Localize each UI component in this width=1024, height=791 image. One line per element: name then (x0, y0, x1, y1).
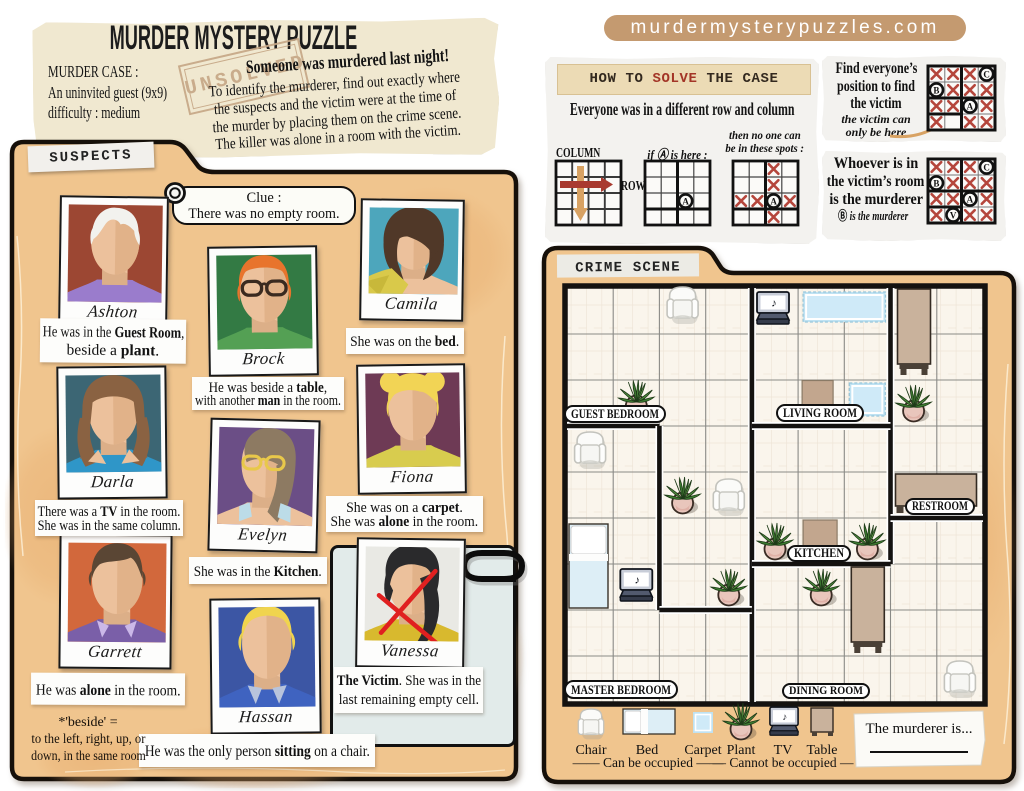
svg-text:GUEST BEDROOM: GUEST BEDROOM (571, 407, 659, 421)
svg-text:DINING ROOM: DINING ROOM (789, 683, 863, 697)
svg-text:CRIME SCENE: CRIME SCENE (575, 260, 681, 277)
svg-text:The murderer is...: The murderer is... (865, 721, 972, 737)
svg-text:C: C (983, 162, 990, 172)
svg-text:A: A (770, 196, 777, 206)
svg-text:B: B (933, 178, 939, 188)
svg-text:A: A (967, 194, 974, 204)
svg-text:KITCHEN: KITCHEN (794, 546, 844, 560)
svg-text:MASTER BEDROOM: MASTER BEDROOM (571, 682, 671, 697)
svg-text:A: A (967, 101, 974, 111)
svg-text:— Cannot be occupied —: — Cannot be occupied — (712, 755, 854, 770)
svg-text:V: V (950, 210, 957, 220)
svg-text:B: B (933, 85, 939, 95)
svg-text:LIVING ROOM: LIVING ROOM (783, 406, 857, 420)
svg-text:RESTROOM: RESTROOM (912, 499, 968, 513)
svg-text:—— Can be occupied ——: —— Can be occupied —— (572, 755, 724, 770)
svg-text:A: A (682, 196, 689, 206)
svg-text:C: C (983, 69, 990, 79)
